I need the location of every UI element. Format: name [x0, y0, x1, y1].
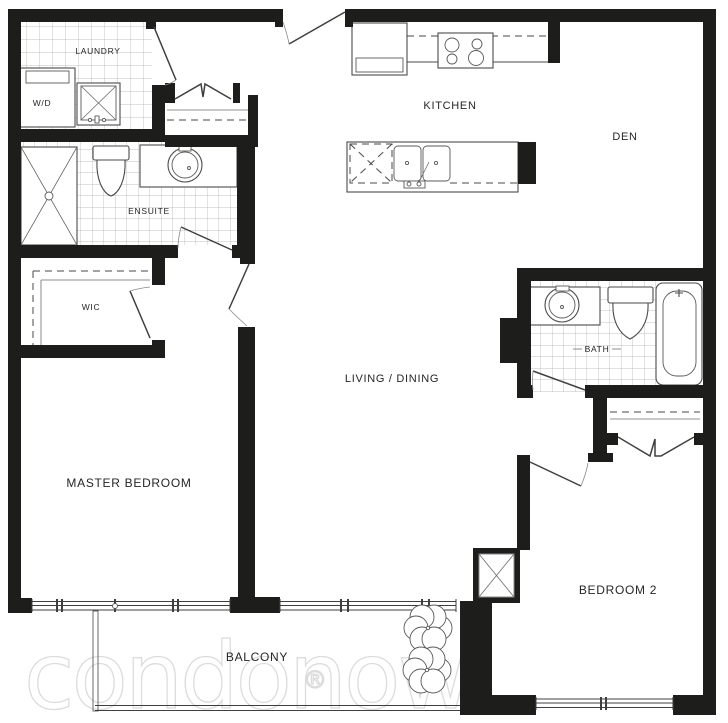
- washer-dryer: W/D: [20, 68, 75, 127]
- service-shaft: [473, 548, 520, 603]
- room-label-kitchen: KITCHEN: [423, 100, 476, 112]
- master-bedroom-door: [229, 264, 249, 326]
- bathtub: [656, 283, 702, 385]
- floor-plan-drawing: condonow ® W/D: [0, 0, 728, 723]
- bedroom2-closet-bifold-doors: [618, 437, 694, 456]
- balcony-plant: [403, 647, 451, 693]
- bedroom2-door: [530, 462, 588, 486]
- room-label-bedroom-2: BEDROOM 2: [579, 583, 657, 597]
- bedroom2-closet: [610, 412, 700, 456]
- shower: [21, 147, 77, 245]
- laundry-sink: [77, 83, 120, 125]
- watermark-text: condonow: [24, 623, 470, 723]
- room-label-den: DEN: [612, 131, 637, 143]
- ensuite-vanity: [140, 145, 237, 187]
- room-label-bath: BATH: [585, 344, 610, 354]
- wd-label: W/D: [33, 98, 52, 108]
- laundry-door: [154, 27, 176, 85]
- master-bedroom-window: [32, 599, 230, 612]
- fridge: [352, 23, 407, 75]
- room-label-balcony: BALCONY: [226, 650, 288, 664]
- wic-door: [130, 287, 150, 338]
- stove: [438, 33, 493, 68]
- kitchen-island: [347, 142, 518, 192]
- room-label-wic: WIC: [82, 302, 101, 312]
- balcony-plant: [404, 605, 452, 651]
- registered-trademark-icon: ®: [303, 666, 327, 694]
- room-label-master-bedroom: MASTER BEDROOM: [66, 476, 191, 490]
- bath-vanity: [530, 286, 600, 325]
- watermark: condonow ®: [24, 623, 470, 723]
- room-label-living-dining: LIVING / DINING: [345, 373, 439, 385]
- bedroom2-window: [536, 697, 673, 710]
- room-label-laundry: LAUNDRY: [75, 46, 120, 56]
- entry-door: [283, 12, 345, 44]
- floor-plan: condonow ® W/D: [0, 0, 728, 723]
- entry-closet-bifold-doors: [175, 84, 231, 99]
- room-label-ensuite: ENSUITE: [128, 206, 170, 216]
